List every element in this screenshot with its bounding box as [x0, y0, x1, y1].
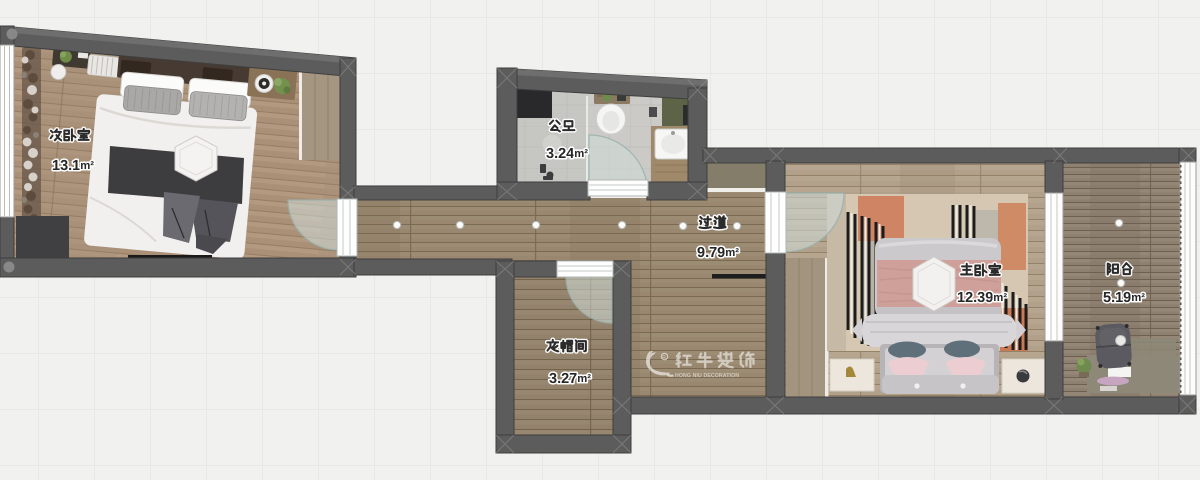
- svg-text:3.27m²: 3.27m²: [549, 371, 591, 387]
- svg-text:13.1m²: 13.1m²: [52, 158, 94, 174]
- svg-text:12.39m²: 12.39m²: [957, 290, 1007, 306]
- svg-text:5.19m²: 5.19m²: [1103, 290, 1145, 306]
- svg-text:HONG NIU DECORATION: HONG NIU DECORATION: [675, 373, 739, 379]
- svg-text:9.79m²: 9.79m²: [697, 245, 739, 261]
- svg-text:R: R: [662, 355, 666, 361]
- svg-text:3.24m²: 3.24m²: [546, 146, 588, 162]
